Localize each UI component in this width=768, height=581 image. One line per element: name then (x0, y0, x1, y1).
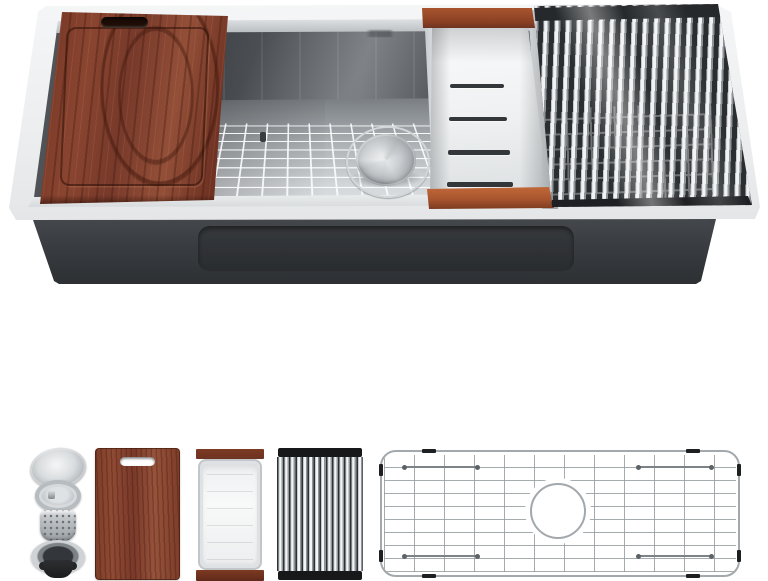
strainer-basket-top (35, 480, 81, 512)
rack-stainless-rods (277, 457, 363, 571)
perforated-basket (40, 510, 76, 541)
colander-tray-body (430, 24, 542, 200)
sink-undercoat-base (33, 219, 716, 285)
colander-drain-slot (447, 182, 513, 187)
tray-inner-shading (430, 24, 542, 200)
grid-crossbar (638, 466, 712, 468)
colander-drain-slot (450, 84, 504, 88)
accessory-rollup-drying-rack (277, 447, 363, 581)
grid-foot (737, 464, 741, 476)
rack-silicone-cap-bottom (278, 571, 362, 580)
grid-foot (422, 449, 436, 453)
grid-foot (379, 464, 383, 476)
grid-handle-loop (260, 132, 266, 142)
accessory-bottom-grid (380, 450, 740, 577)
colander-wood-end-bottom (196, 570, 264, 581)
grid-crossbar (404, 466, 478, 468)
rollup-rack-installed (534, 4, 752, 208)
colander-drain-slot (448, 150, 510, 155)
accessory-cutting-board (95, 448, 180, 580)
grid-crossbar (404, 555, 478, 557)
accessory-colander-tray (196, 447, 264, 581)
cutting-board-installed (40, 10, 230, 204)
brand-logo (366, 30, 394, 37)
grid-foot (737, 550, 741, 562)
colander-wood-end-front (425, 187, 558, 209)
drain-basket-strainer (356, 134, 416, 186)
board-handle-hole (120, 457, 155, 466)
accessories-row (0, 440, 768, 581)
grid-foot (422, 574, 436, 578)
base-recessed-panel (198, 226, 574, 272)
board-handle-slot (101, 17, 149, 28)
rack-silicone-cap-top (278, 448, 362, 457)
colander-drain-slot (449, 117, 507, 121)
grid-crossbar (638, 555, 712, 557)
grid-foot (686, 574, 700, 578)
juice-groove (59, 27, 209, 186)
sink-main-view (0, 0, 768, 300)
drain-tailpiece (43, 560, 73, 578)
grid-foot (686, 449, 700, 453)
colander-steel-tray (198, 459, 262, 570)
colander-wood-end-back (422, 8, 535, 28)
accessory-drain-strainer-assembly (28, 448, 88, 578)
grid-drain-opening (530, 483, 586, 539)
product-photo (0, 0, 768, 581)
rack-reflection (534, 4, 752, 208)
grid-foot (379, 550, 383, 562)
tray-ridges (207, 469, 253, 560)
strainer-knob (48, 490, 55, 499)
colander-wood-end-top (196, 449, 264, 459)
